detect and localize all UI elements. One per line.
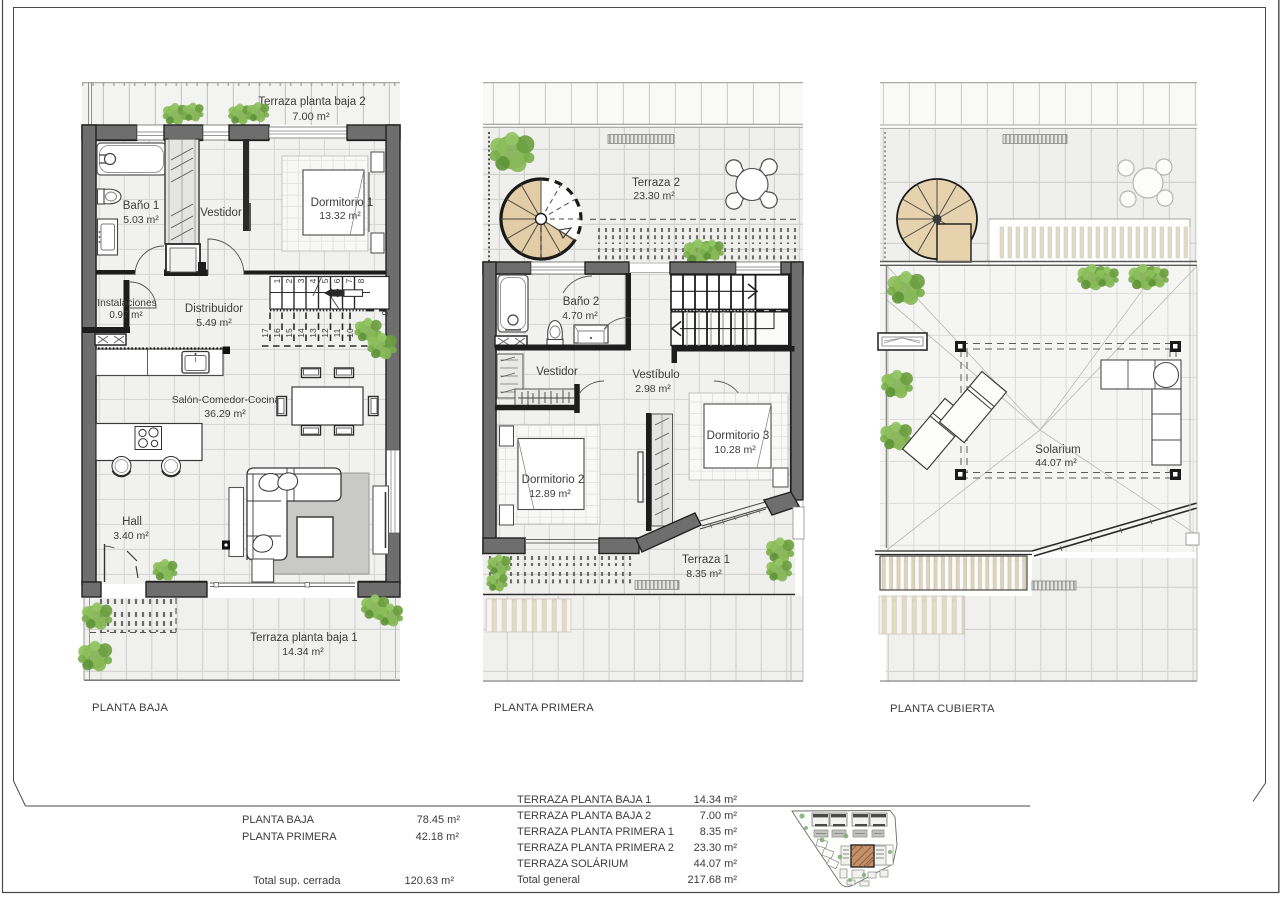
svg-text:3.40 m²: 3.40 m² xyxy=(113,530,149,542)
svg-text:16: 16 xyxy=(272,328,282,338)
svg-text:TERRAZA PLANTA BAJA 1: TERRAZA PLANTA BAJA 1 xyxy=(517,794,651,806)
svg-text:PLANTA CUBIERTA: PLANTA CUBIERTA xyxy=(890,703,995,715)
svg-text:44.07 m²: 44.07 m² xyxy=(1035,457,1077,469)
svg-text:17: 17 xyxy=(260,328,270,338)
svg-text:Vestíbulo: Vestíbulo xyxy=(632,369,679,381)
svg-text:3: 3 xyxy=(296,278,306,283)
svg-text:9: 9 xyxy=(380,310,390,315)
svg-text:5: 5 xyxy=(320,278,330,283)
svg-text:2.98 m²: 2.98 m² xyxy=(635,383,671,395)
svg-text:23.30 m²: 23.30 m² xyxy=(694,842,738,854)
svg-text:6: 6 xyxy=(332,278,342,283)
svg-text:5.03 m²: 5.03 m² xyxy=(123,214,159,226)
svg-text:TERRAZA SOLÁRIUM: TERRAZA SOLÁRIUM xyxy=(517,857,628,870)
svg-text:4: 4 xyxy=(308,278,318,283)
svg-text:78.45 m²: 78.45 m² xyxy=(417,814,461,826)
svg-text:4.70 m²: 4.70 m² xyxy=(562,310,598,322)
svg-text:13.32 m²: 13.32 m² xyxy=(319,210,361,222)
svg-text:10: 10 xyxy=(345,328,355,338)
svg-text:Dormitorio 2: Dormitorio 2 xyxy=(522,474,585,486)
svg-text:1: 1 xyxy=(272,278,282,283)
svg-text:PLANTA PRIMERA: PLANTA PRIMERA xyxy=(242,831,337,843)
svg-text:Total sup. cerrada: Total sup. cerrada xyxy=(253,875,341,887)
svg-text:12.89 m²: 12.89 m² xyxy=(529,488,571,500)
svg-text:7: 7 xyxy=(344,278,354,283)
svg-text:Baño 2: Baño 2 xyxy=(563,296,599,308)
svg-text:TERRAZA PLANTA PRIMERA 1: TERRAZA PLANTA PRIMERA 1 xyxy=(517,826,674,838)
svg-text:0.97 m²: 0.97 m² xyxy=(109,310,143,321)
svg-text:14.34 m²: 14.34 m² xyxy=(694,794,738,806)
svg-text:217.68 m²: 217.68 m² xyxy=(687,874,737,886)
svg-text:Solarium: Solarium xyxy=(1035,444,1080,456)
svg-text:PLANTA PRIMERA: PLANTA PRIMERA xyxy=(494,702,594,714)
svg-text:Terraza 2: Terraza 2 xyxy=(632,177,680,189)
svg-text:120.63 m²: 120.63 m² xyxy=(404,875,454,887)
svg-text:36.29 m²: 36.29 m² xyxy=(204,408,246,420)
svg-text:11: 11 xyxy=(332,328,342,337)
svg-text:2: 2 xyxy=(284,278,294,283)
svg-text:42.18 m²: 42.18 m² xyxy=(416,831,460,843)
svg-text:14: 14 xyxy=(296,328,306,338)
svg-text:Total general: Total general xyxy=(517,874,580,886)
svg-text:7.00 m²: 7.00 m² xyxy=(292,111,330,123)
svg-text:TERRAZA PLANTA PRIMERA 2: TERRAZA PLANTA PRIMERA 2 xyxy=(517,842,674,854)
svg-text:PLANTA BAJA: PLANTA BAJA xyxy=(92,702,168,714)
svg-text:10.28 m²: 10.28 m² xyxy=(714,444,756,456)
svg-text:Terraza planta baja 1: Terraza planta baja 1 xyxy=(250,632,357,644)
svg-text:Salón-Comedor-Cocina: Salón-Comedor-Cocina xyxy=(172,395,281,406)
svg-text:5.49 m²: 5.49 m² xyxy=(196,317,232,329)
svg-text:Terraza 1: Terraza 1 xyxy=(682,554,730,566)
svg-text:15: 15 xyxy=(284,328,294,338)
svg-text:Dormitorio 3: Dormitorio 3 xyxy=(707,430,770,442)
svg-text:PLANTA BAJA: PLANTA BAJA xyxy=(242,814,315,826)
svg-text:8.35 m²: 8.35 m² xyxy=(700,826,738,838)
svg-text:Vestidor: Vestidor xyxy=(200,207,242,219)
svg-text:13: 13 xyxy=(308,328,318,338)
svg-text:7.00 m²: 7.00 m² xyxy=(700,810,738,822)
svg-text:Instalaciones: Instalaciones xyxy=(97,298,156,309)
svg-text:TERRAZA PLANTA BAJA 2: TERRAZA PLANTA BAJA 2 xyxy=(517,810,651,822)
svg-text:Hall: Hall xyxy=(122,516,142,528)
svg-text:8: 8 xyxy=(356,278,366,283)
svg-text:14.34 m²: 14.34 m² xyxy=(282,646,324,658)
svg-text:Distribuidor: Distribuidor xyxy=(185,303,243,315)
svg-text:23.30 m²: 23.30 m² xyxy=(633,190,675,202)
svg-text:Dormitorio 1: Dormitorio 1 xyxy=(311,197,374,209)
svg-text:Terraza planta baja 2: Terraza planta baja 2 xyxy=(258,96,365,108)
svg-text:12: 12 xyxy=(320,328,330,338)
svg-text:Vestidor: Vestidor xyxy=(536,366,578,378)
svg-text:8.35 m²: 8.35 m² xyxy=(686,568,722,580)
svg-text:44.07 m²: 44.07 m² xyxy=(694,858,738,870)
svg-text:Baño 1: Baño 1 xyxy=(123,200,159,212)
